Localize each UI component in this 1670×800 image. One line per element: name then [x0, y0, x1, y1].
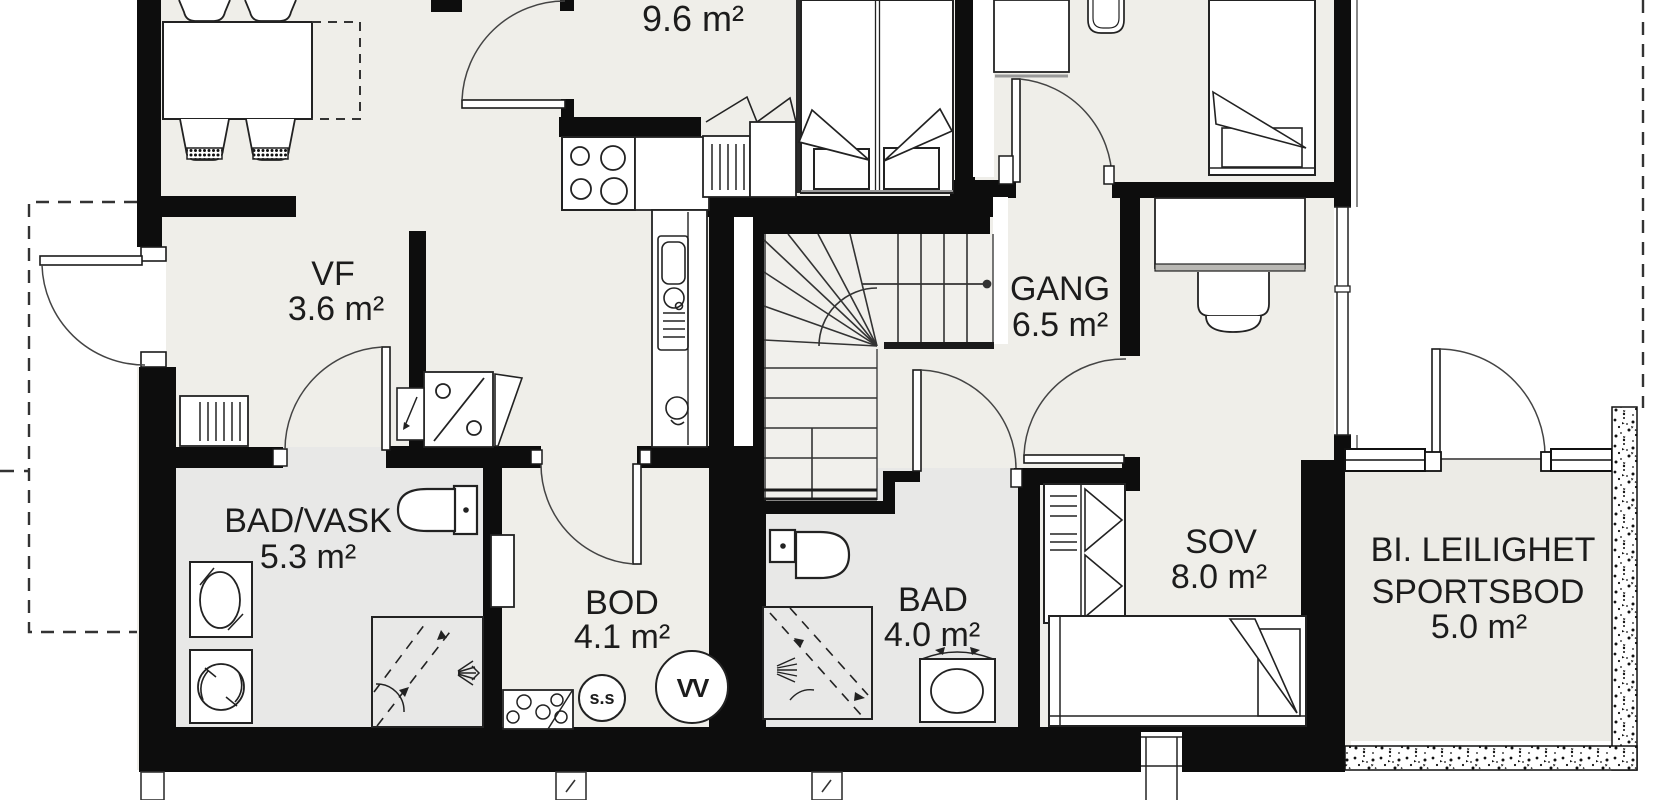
svg-text:VF: VF [311, 255, 354, 293]
svg-text:BAD/VASK: BAD/VASK [224, 502, 392, 540]
svg-text:s.s: s.s [589, 688, 614, 708]
svg-text:4.1 m²: 4.1 m² [574, 618, 670, 656]
svg-text:9.6 m²: 9.6 m² [642, 0, 744, 39]
svg-text:SPORTSBOD: SPORTSBOD [1372, 573, 1585, 611]
svg-text:SOV: SOV [1185, 523, 1257, 561]
svg-text:3.6 m²: 3.6 m² [288, 290, 384, 328]
svg-text:6.5 m²: 6.5 m² [1012, 306, 1108, 344]
svg-text:GANG: GANG [1010, 270, 1110, 308]
svg-text:5.0 m²: 5.0 m² [1431, 608, 1527, 646]
svg-text:VV: VV [677, 673, 710, 703]
svg-text:BAD: BAD [898, 581, 968, 619]
svg-text:8.0 m²: 8.0 m² [1171, 558, 1267, 596]
svg-text:5.3 m²: 5.3 m² [260, 538, 356, 576]
svg-text:4.0 m²: 4.0 m² [884, 616, 980, 654]
svg-text:BOD: BOD [585, 584, 659, 622]
svg-text:BI. LEILIGHET: BI. LEILIGHET [1371, 531, 1596, 569]
